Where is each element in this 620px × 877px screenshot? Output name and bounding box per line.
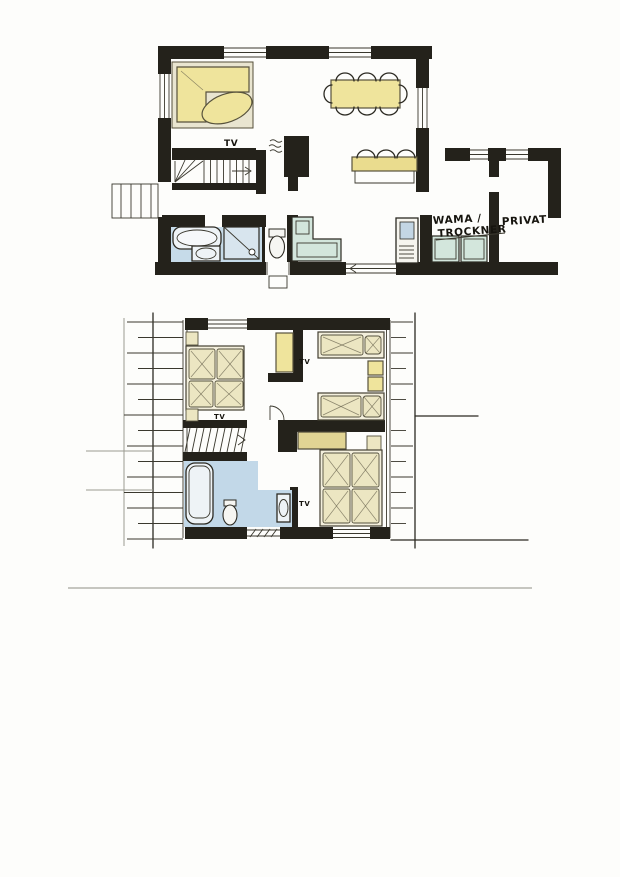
hall-closet (298, 432, 346, 449)
nightstand (368, 377, 383, 391)
sink-upper (277, 494, 290, 522)
nightstand (367, 436, 381, 450)
tv-label-living: TV (224, 139, 238, 149)
window-top-right (329, 48, 371, 57)
kitchen-bar (352, 150, 417, 183)
tv-label-bedroom-left: TV (214, 413, 225, 421)
nightstand (368, 361, 383, 375)
ground-floor-plan: TV WAMA / TROCKNER PRIVAT (112, 46, 561, 288)
kitchen-counter (292, 217, 341, 261)
tv-label-bathroom: TV (299, 500, 310, 508)
window-top-left (224, 48, 266, 57)
window-right-dining (418, 88, 427, 128)
tv-label-bedroom-right: TV (299, 358, 310, 366)
bar-counter (352, 157, 417, 171)
dining-area (324, 73, 407, 115)
bathroom-upper (184, 461, 292, 527)
nightstand (186, 409, 198, 421)
shower (224, 227, 259, 259)
bathtub-upper (186, 463, 213, 524)
dryer (461, 236, 487, 262)
window-left-living (160, 74, 169, 118)
entrance-steps (112, 184, 158, 218)
bedroom-top-left (186, 332, 244, 421)
nightstand (186, 332, 198, 345)
kitchen (292, 217, 418, 263)
stairs-upper (185, 428, 246, 452)
roof-band-right (387, 313, 529, 548)
wardrobe (276, 333, 293, 372)
upper-floor-plan: TV TV TV (86, 313, 528, 548)
dining-table (331, 80, 400, 108)
bedroom-top-right (318, 332, 384, 420)
bathroom-ground (171, 227, 285, 262)
living-room (172, 62, 256, 130)
sink (192, 246, 220, 261)
window-annex-1 (470, 150, 488, 159)
window-upper-bottom (333, 530, 370, 538)
window-upper-top (208, 320, 247, 328)
fridge (396, 218, 418, 263)
floor-plan-drawing: TV WAMA / TROCKNER PRIVAT (0, 0, 620, 877)
bedroom-door-swing (270, 406, 284, 420)
balcony-door-bottom (247, 529, 280, 537)
roof-band-left (86, 313, 187, 548)
bedroom-bottom-right (320, 450, 382, 526)
toilet-upper (223, 500, 237, 525)
door-bottom-entry (267, 262, 289, 288)
floor-plan-scan: TV WAMA / TROCKNER PRIVAT (0, 0, 620, 877)
window-annex-2 (506, 150, 528, 159)
window-bottom-kitchen (346, 264, 396, 273)
toilet (269, 229, 285, 258)
privat-label: PRIVAT (502, 214, 548, 228)
fireplace-chimney (269, 136, 309, 191)
stairs-ground (175, 160, 251, 183)
